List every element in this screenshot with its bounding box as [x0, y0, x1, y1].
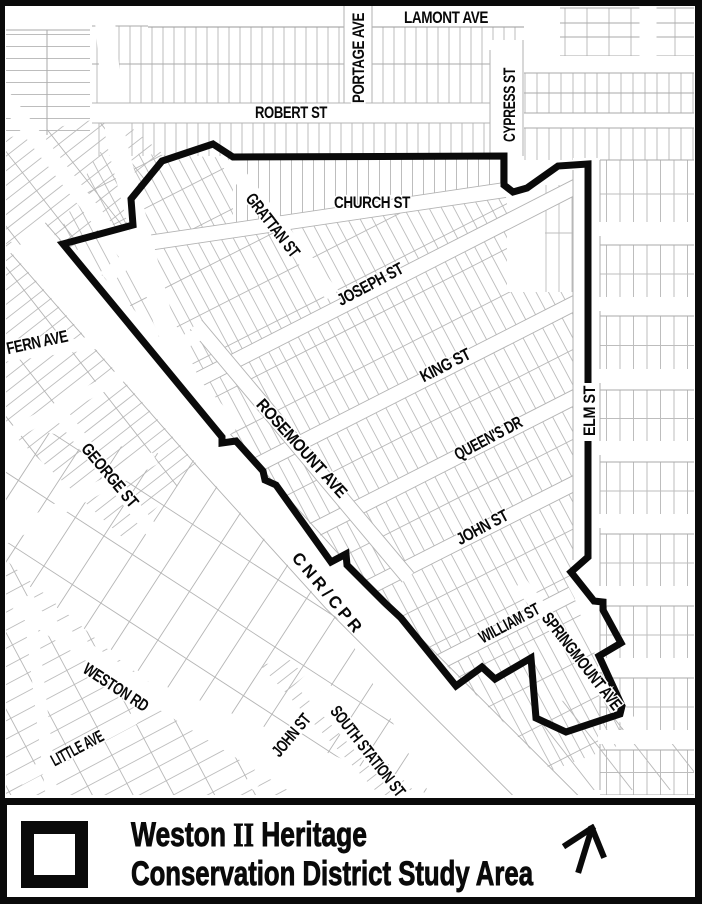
svg-text:ROBERT ST: ROBERT ST [255, 103, 328, 122]
svg-text:Weston II Heritage: Weston II Heritage [131, 816, 367, 854]
svg-text:CHURCH ST: CHURCH ST [334, 193, 411, 212]
svg-text:Conservation District Study Ar: Conservation District Study Area [131, 855, 534, 893]
svg-text:ELM ST: ELM ST [580, 385, 599, 436]
svg-text:LAMONT AVE: LAMONT AVE [404, 8, 488, 27]
svg-text:CYPRESS ST: CYPRESS ST [500, 67, 519, 142]
svg-text:PORTAGE AVE: PORTAGE AVE [349, 13, 368, 103]
